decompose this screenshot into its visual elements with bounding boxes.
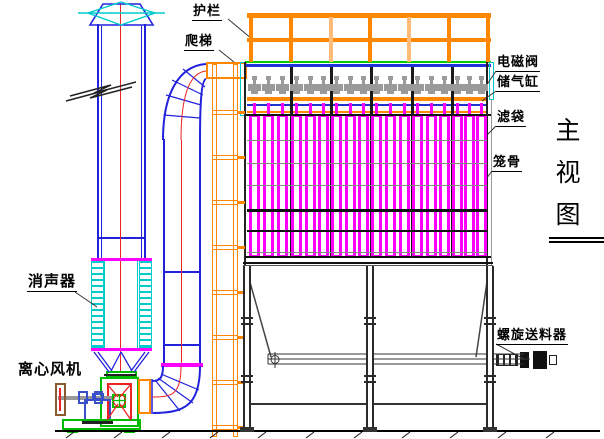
ladder-standoff bbox=[238, 201, 245, 204]
ladder-rung bbox=[212, 425, 238, 430]
guardrail-post bbox=[407, 17, 411, 62]
discharger-coupling bbox=[520, 352, 529, 368]
filter-bag bbox=[385, 116, 396, 256]
valve-part bbox=[317, 84, 330, 91]
valve-part bbox=[438, 84, 451, 91]
valve-part bbox=[248, 84, 261, 91]
valve-part bbox=[428, 91, 435, 94]
stack-wall-inner-left bbox=[101, 26, 102, 259]
solenoid-valve bbox=[425, 76, 438, 97]
duct-joint-2 bbox=[163, 344, 201, 346]
venturi-stub bbox=[309, 103, 312, 114]
valve-part bbox=[398, 84, 411, 91]
filter-bag bbox=[452, 116, 463, 256]
valve-part bbox=[387, 91, 394, 94]
filter-bag bbox=[476, 116, 487, 256]
duct-centerline bbox=[181, 140, 182, 363]
valve-part bbox=[478, 91, 485, 94]
ground-hatch bbox=[66, 432, 554, 438]
leg-base-plate bbox=[240, 427, 254, 432]
view-title-char-2: 视 bbox=[551, 160, 585, 185]
discharger-gearbox bbox=[496, 354, 518, 366]
fan-top-plate bbox=[104, 374, 136, 376]
label-screw-discharger: 螺旋送料器 bbox=[496, 329, 568, 345]
filter-bag bbox=[305, 116, 316, 256]
valve-part bbox=[307, 91, 314, 94]
valve-part bbox=[401, 91, 408, 94]
solenoid-valve bbox=[411, 76, 424, 97]
rain-cap-diamond bbox=[88, 2, 155, 25]
ladder-rung bbox=[212, 155, 238, 160]
label-ladder: 爬梯 bbox=[184, 35, 214, 51]
ladder-standoff bbox=[238, 156, 245, 159]
valve-part bbox=[333, 91, 340, 94]
leg-base-plate bbox=[363, 427, 377, 432]
filter-bag bbox=[345, 116, 356, 256]
filter-bag bbox=[263, 116, 274, 256]
venturi-stub bbox=[253, 103, 256, 114]
support-beam bbox=[243, 262, 493, 264]
solenoid-valve bbox=[370, 76, 383, 97]
support-leg bbox=[486, 266, 494, 428]
label-bag-cage: 笼骨 bbox=[492, 156, 522, 172]
bag-section-line bbox=[247, 252, 487, 253]
stack-centerline bbox=[120, 4, 121, 372]
venturi-stub bbox=[468, 103, 471, 114]
valve-part bbox=[425, 84, 438, 91]
filter-bag bbox=[371, 116, 382, 256]
valve-part bbox=[262, 84, 275, 91]
valve-part bbox=[347, 91, 354, 94]
valve-part bbox=[360, 91, 367, 94]
pulley-centerline bbox=[59, 388, 61, 411]
muffler-inner-right-line bbox=[137, 261, 138, 348]
venturi-stub bbox=[389, 103, 392, 114]
valve-part bbox=[330, 84, 343, 91]
ladder-rung bbox=[212, 335, 238, 340]
solenoid-valve bbox=[475, 76, 488, 97]
guardrail-post bbox=[249, 17, 253, 62]
stack-wall-inner-right bbox=[141, 26, 142, 259]
duct-joint-1 bbox=[163, 271, 201, 273]
valve-part bbox=[370, 84, 383, 91]
guardrail-post bbox=[329, 17, 333, 62]
break-symbol bbox=[70, 82, 136, 96]
ground-line bbox=[55, 430, 600, 432]
filter-bag bbox=[277, 116, 288, 256]
filter-bag bbox=[439, 116, 450, 256]
leg-splice-plate bbox=[241, 317, 253, 325]
stack-wall-right bbox=[144, 24, 146, 260]
duct-wall-right bbox=[199, 139, 201, 365]
ladder-rung bbox=[212, 380, 238, 385]
solenoid-valve bbox=[290, 76, 303, 97]
venturi-stub bbox=[456, 103, 459, 114]
discharger-motor bbox=[531, 351, 547, 369]
stack-joint-line bbox=[97, 237, 146, 239]
fan-hub bbox=[112, 394, 126, 408]
ladder-standoff bbox=[238, 111, 245, 114]
valve-part bbox=[373, 91, 380, 94]
solenoid-valve bbox=[398, 76, 411, 97]
view-title-underline-2 bbox=[549, 241, 604, 243]
venturi-stub bbox=[443, 103, 446, 114]
label-guardrail: 护栏 bbox=[192, 5, 222, 21]
label-air-reservoir: 储气缸 bbox=[496, 76, 540, 92]
fan-outlet-flange bbox=[138, 379, 151, 414]
venturi-stub bbox=[480, 103, 483, 114]
valve-part bbox=[411, 84, 424, 91]
ladder-rung bbox=[212, 200, 238, 205]
filter-bag bbox=[464, 116, 475, 256]
guardrail-post bbox=[368, 17, 372, 62]
baghouse-left-wall bbox=[244, 62, 246, 265]
valve-part bbox=[466, 91, 473, 94]
filter-bag bbox=[331, 116, 342, 256]
valve-part bbox=[276, 84, 289, 91]
guardrail-post bbox=[289, 17, 293, 62]
ladder-rung bbox=[212, 245, 238, 250]
muffler-inner-left-line bbox=[104, 261, 105, 348]
ladder-standoff bbox=[238, 246, 245, 249]
valve-part bbox=[320, 91, 327, 94]
solenoid-valve bbox=[304, 76, 317, 97]
filter-bag bbox=[291, 116, 302, 256]
stack-wall-left bbox=[97, 24, 99, 260]
muffler-bottom-band bbox=[91, 348, 152, 351]
solenoid-valve bbox=[317, 76, 330, 97]
view-title-char-1: 主 bbox=[551, 118, 585, 143]
view-title-char-3: 图 bbox=[551, 202, 585, 227]
leg-splice-plate bbox=[364, 375, 376, 383]
label-filter-bag: 滤袋 bbox=[496, 111, 526, 127]
label-muffler: 消声器 bbox=[27, 274, 77, 292]
discharger-end-cap bbox=[549, 355, 557, 365]
bag-bottom-line bbox=[245, 256, 491, 258]
valve-part bbox=[304, 84, 317, 91]
label-solenoid-valve: 电磁阀 bbox=[496, 56, 540, 72]
venturi-stub bbox=[430, 103, 433, 114]
roof-blue-plate bbox=[245, 64, 491, 67]
valve-part bbox=[279, 91, 286, 94]
muffler-left-lining bbox=[91, 261, 104, 348]
valve-part bbox=[265, 91, 272, 94]
duct-flange-band bbox=[161, 363, 203, 367]
venturi-stub bbox=[375, 103, 378, 114]
bag-section-line bbox=[247, 209, 487, 212]
leader-ladder bbox=[219, 50, 234, 62]
solenoid-valve bbox=[330, 76, 343, 97]
ladder-rung bbox=[212, 110, 238, 115]
leg-splice-plate bbox=[241, 375, 253, 383]
solenoid-valve bbox=[262, 76, 275, 97]
leg-splice-plate bbox=[364, 317, 376, 325]
valve-part bbox=[475, 84, 488, 91]
ladder-rung bbox=[212, 290, 238, 295]
filter-bag bbox=[412, 116, 423, 256]
valve-part bbox=[414, 91, 421, 94]
duct-wall-left bbox=[163, 139, 165, 365]
view-title: 主 视 图 bbox=[551, 118, 585, 244]
valve-part bbox=[454, 91, 461, 94]
valve-part bbox=[293, 91, 300, 94]
venturi-stub bbox=[416, 103, 419, 114]
leg-base-plate bbox=[483, 427, 497, 432]
support-leg bbox=[366, 266, 374, 428]
guardrail-post bbox=[447, 17, 451, 62]
muffler-right-lining bbox=[139, 261, 152, 348]
rain-cap-cone bbox=[90, 4, 153, 25]
venturi-stub bbox=[349, 103, 352, 114]
solenoid-valve bbox=[344, 76, 357, 97]
venturi-stub bbox=[403, 103, 406, 114]
bag-section-line bbox=[247, 163, 487, 164]
solenoid-valve bbox=[276, 76, 289, 97]
guardrail-post bbox=[486, 17, 490, 62]
support-leg bbox=[243, 266, 251, 428]
baghouse-right-outer-line bbox=[491, 100, 492, 265]
valve-part bbox=[357, 84, 370, 91]
filter-bag bbox=[399, 116, 410, 256]
filter-bag bbox=[318, 116, 329, 256]
venturi-stub bbox=[322, 103, 325, 114]
view-title-underline-1 bbox=[549, 237, 604, 239]
plenum-right-cyan-wall bbox=[489, 62, 494, 100]
bag-section-line bbox=[247, 230, 487, 232]
leg-splice-plate bbox=[484, 317, 496, 325]
leg-splice-plate bbox=[484, 375, 496, 383]
break-symbol-2 bbox=[66, 87, 132, 101]
filter-bag bbox=[358, 116, 369, 256]
valve-part bbox=[384, 84, 397, 91]
filter-bag bbox=[426, 116, 437, 256]
solenoid-valve bbox=[357, 76, 370, 97]
venturi-stub bbox=[267, 103, 270, 114]
valve-part bbox=[344, 84, 357, 91]
bag-section-line bbox=[247, 140, 487, 141]
bag-section-line bbox=[247, 185, 487, 186]
venturi-stub bbox=[362, 103, 365, 114]
valve-part bbox=[251, 91, 258, 94]
solenoid-valve bbox=[438, 76, 451, 97]
valve-part bbox=[290, 84, 303, 91]
venturi-stub bbox=[281, 103, 284, 114]
label-centrifugal-fan: 离心风机 bbox=[17, 362, 83, 379]
valve-part bbox=[441, 91, 448, 94]
solenoid-valve bbox=[384, 76, 397, 97]
fan-motor-terminal-box bbox=[92, 393, 104, 400]
filter-bag bbox=[249, 116, 260, 256]
venturi-stub bbox=[335, 103, 338, 114]
venturi-stub bbox=[295, 103, 298, 114]
baghouse-dust-collector-drawing: 护栏 爬梯 电磁阀 储气缸 滤袋 笼骨 消声器 离心风机 螺旋送料器 主 视 图 bbox=[0, 0, 604, 439]
solenoid-valve bbox=[248, 76, 261, 97]
